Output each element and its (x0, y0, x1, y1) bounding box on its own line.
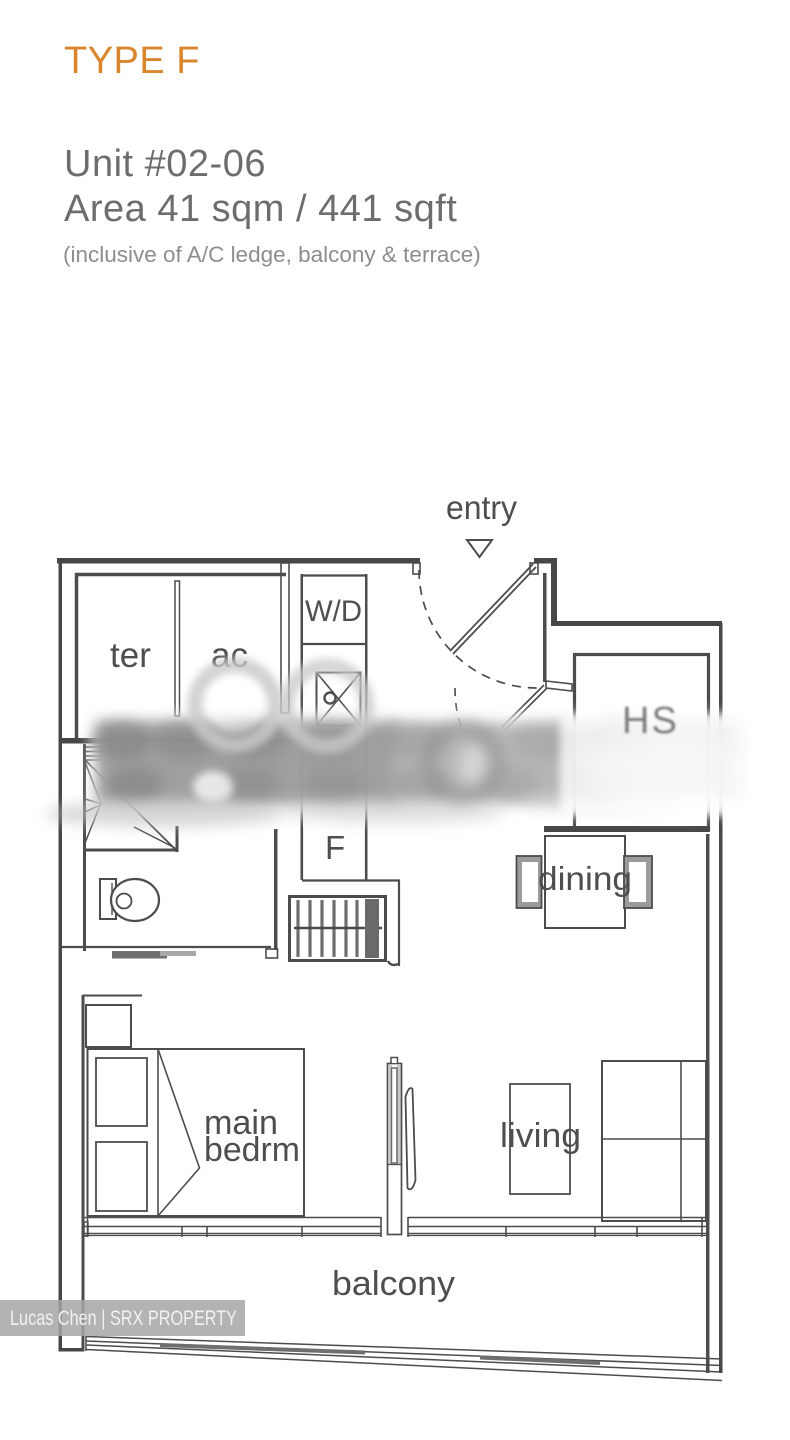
svg-text:W/D: W/D (305, 595, 362, 628)
svg-text:F: F (325, 829, 345, 866)
svg-text:dining: dining (538, 860, 632, 897)
svg-text:living: living (500, 1117, 581, 1155)
svg-text:(inclusive of A/C ledge, balco: (inclusive of A/C ledge, balcony & terra… (63, 242, 481, 267)
svg-text:TYPE F: TYPE F (64, 40, 200, 82)
svg-text:Unit #02-06: Unit #02-06 (64, 143, 266, 185)
svg-text:entry: entry (446, 489, 517, 526)
svg-text:bedrm: bedrm (204, 1131, 300, 1169)
svg-text:balcony: balcony (332, 1265, 455, 1303)
svg-text:Lucas Chen | SRX PROPERTY: Lucas Chen | SRX PROPERTY (10, 1306, 237, 1330)
svg-text:HS: HS (622, 700, 679, 742)
svg-text:Area 41 sqm / 441 sqft: Area 41 sqm / 441 sqft (64, 188, 457, 230)
svg-text:ter: ter (110, 636, 151, 675)
